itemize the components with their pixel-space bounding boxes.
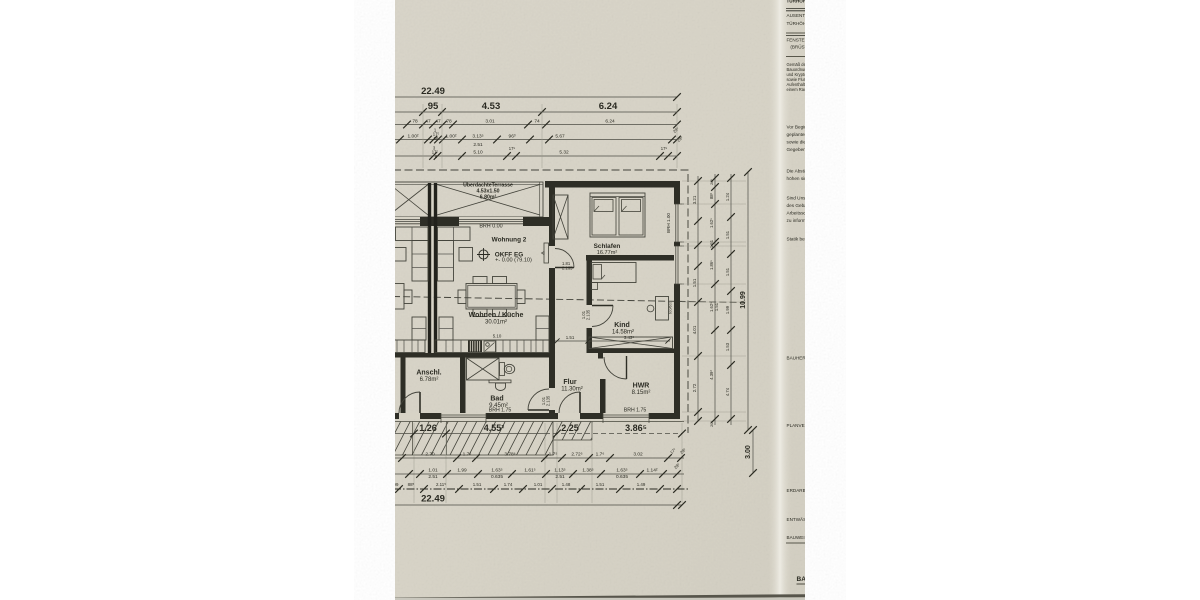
svg-text:4.74: 4.74 (725, 387, 730, 396)
svg-text:Wohnung 2: Wohnung 2 (492, 237, 527, 244)
svg-text:2.135: 2.135 (546, 395, 551, 406)
svg-text:PLANVERFASS: PLANVERFASS (787, 423, 820, 428)
svg-text:1.51: 1.51 (714, 302, 719, 311)
svg-text:16.77m²: 16.77m² (597, 250, 618, 256)
svg-text:Vor Beginn der Roh: Vor Beginn der Roh (787, 125, 828, 130)
svg-text:BRH 1.75: BRH 1.75 (489, 408, 512, 414)
svg-text:1.51: 1.51 (473, 482, 482, 487)
svg-text:1.63⁵: 1.63⁵ (491, 468, 502, 474)
svg-text:4.39³: 4.39³ (709, 370, 714, 380)
svg-text:1.01: 1.01 (534, 482, 543, 487)
svg-text:0.635: 0.635 (616, 474, 628, 480)
svg-text:96³: 96³ (509, 134, 516, 140)
svg-text:3.00: 3.00 (745, 445, 752, 459)
svg-text:Arbeitsschritte un: Arbeitsschritte un (787, 211, 824, 216)
svg-text:6.80m²: 6.80m² (480, 195, 497, 201)
svg-text:22.49: 22.49 (421, 494, 445, 505)
svg-text:1.7⁶: 1.7⁶ (463, 452, 472, 458)
svg-text:1.7⁶: 1.7⁶ (596, 452, 605, 458)
svg-text:(BRÜSTUNG: (BRÜSTUNG (787, 44, 819, 50)
svg-text:5.10: 5.10 (493, 334, 502, 339)
svg-text:1.48: 1.48 (562, 482, 571, 487)
svg-text:78: 78 (446, 119, 452, 125)
svg-text:geplanten Bauteile: geplanten Bauteile (787, 132, 826, 137)
svg-text:1.51: 1.51 (692, 278, 697, 287)
svg-text:BAUWEISE: BAUWEISE (787, 535, 811, 540)
svg-text:17⁵: 17⁵ (661, 146, 668, 151)
svg-text:1.99: 1.99 (457, 468, 467, 474)
svg-text:95: 95 (428, 101, 439, 112)
svg-text:ÜberdachteTerrasse: ÜberdachteTerrasse (463, 182, 513, 189)
svg-text:6.24: 6.24 (605, 119, 615, 125)
svg-text:Kind: Kind (614, 322, 630, 329)
svg-text:1.51: 1.51 (709, 239, 714, 248)
svg-text:+- 0.00 (79.10): +- 0.00 (79.10) (495, 258, 532, 264)
svg-text:2.135: 2.135 (562, 266, 573, 271)
svg-text:30.01m²: 30.01m² (485, 320, 507, 326)
svg-text:28⁵: 28⁵ (710, 179, 714, 185)
svg-text:1.63⁵: 1.63⁵ (616, 468, 627, 474)
svg-text:2.51: 2.51 (473, 142, 483, 148)
svg-text:74: 74 (534, 119, 540, 125)
svg-text:BRH 0.00: BRH 0.00 (479, 224, 502, 230)
svg-text:6.24: 6.24 (599, 101, 618, 112)
svg-text:47: 47 (425, 119, 431, 125)
svg-text:des Gebäudes ode: des Gebäudes ode (787, 203, 827, 208)
svg-text:1.51: 1.51 (596, 482, 605, 487)
svg-text:Sind Unstimmigke: Sind Unstimmigke (787, 196, 825, 201)
svg-text:BRH 1.00: BRH 1.00 (666, 213, 671, 233)
svg-text:2.51: 2.51 (555, 474, 565, 480)
svg-text:HWR: HWR (633, 383, 650, 390)
svg-text:3.43⁵: 3.43⁵ (624, 335, 635, 340)
svg-text:2.51: 2.51 (428, 474, 438, 480)
svg-text:0.635: 0.635 (491, 474, 503, 480)
svg-text:AUSENTÜREN: AUSENTÜREN (787, 12, 819, 18)
svg-text:1.49: 1.49 (637, 482, 646, 487)
svg-text:88⁵: 88⁵ (408, 482, 415, 487)
svg-text:1.74: 1.74 (504, 482, 513, 487)
svg-text:1.26: 1.26 (419, 423, 437, 433)
svg-text:Statik beachten!: Statik beachten! (787, 237, 821, 242)
svg-text:1.99: 1.99 (725, 305, 730, 314)
svg-text:1.53: 1.53 (725, 342, 730, 351)
svg-text:einem Rauchmelde: einem Rauchmelde (787, 87, 823, 92)
svg-text:36: 36 (434, 136, 439, 141)
svg-text:2.72⁵: 2.72⁵ (571, 452, 582, 458)
svg-text:11.30m²: 11.30m² (561, 387, 583, 393)
svg-text:3.86⁵: 3.86⁵ (625, 423, 647, 433)
svg-text:BAUVORH: BAUVORH (797, 576, 830, 583)
svg-text:Flur: Flur (563, 379, 576, 386)
svg-text:Bad: Bad (490, 396, 503, 403)
svg-text:Schlafen: Schlafen (594, 243, 621, 250)
svg-text:6.78m²: 6.78m² (420, 377, 439, 383)
svg-text:1.13⁵: 1.13⁵ (554, 468, 565, 474)
svg-text:1.38⁵: 1.38⁵ (582, 468, 593, 474)
svg-text:20⁵: 20⁵ (710, 421, 714, 427)
svg-text:22.49: 22.49 (421, 86, 445, 97)
svg-text:2.72: 2.72 (692, 383, 697, 392)
svg-text:TÜRHÖHEN LIC: TÜRHÖHEN LIC (787, 20, 822, 26)
svg-text:3.02: 3.02 (633, 452, 643, 458)
svg-text:5.32: 5.32 (559, 150, 569, 156)
svg-text:3.01: 3.01 (485, 119, 495, 125)
svg-text:3.78⁶: 3.78⁶ (504, 452, 515, 458)
svg-text:99: 99 (394, 482, 399, 487)
svg-text:1.86⁵: 1.86⁵ (709, 260, 714, 270)
svg-text:3.13⁵: 3.13⁵ (472, 134, 483, 140)
svg-text:Die Abstände der: Die Abstände der (787, 169, 823, 174)
svg-text:1.51: 1.51 (725, 230, 730, 239)
svg-text:3.21: 3.21 (692, 195, 697, 204)
svg-text:600/600: 600/600 (669, 302, 673, 314)
svg-text:8.15m²: 8.15m² (632, 390, 651, 396)
svg-text:1.00²: 1.00² (446, 134, 457, 140)
svg-text:sowie die vorhande: sowie die vorhande (787, 140, 828, 145)
svg-text:10.99: 10.99 (740, 291, 747, 309)
svg-text:14.58m²: 14.58m² (612, 330, 634, 336)
svg-text:1.62⁵: 1.62⁵ (709, 218, 714, 228)
svg-text:5.10: 5.10 (473, 150, 483, 156)
svg-text:88²: 88² (709, 192, 714, 199)
svg-text:BAUHERR:: BAUHERR: (787, 356, 811, 361)
svg-text:1.01: 1.01 (428, 468, 438, 474)
svg-text:höhen sind vor Or: höhen sind vor Or (787, 176, 825, 181)
svg-text:4.53: 4.53 (482, 101, 501, 112)
svg-text:ENTWÄSSERU: ENTWÄSSERU (787, 516, 819, 522)
svg-text:17⁵: 17⁵ (509, 146, 516, 151)
svg-text:2.11⁵: 2.11⁵ (436, 482, 446, 487)
svg-text:1.51: 1.51 (725, 267, 730, 276)
svg-text:4.01: 4.01 (692, 325, 697, 334)
svg-text:2.25: 2.25 (561, 423, 579, 433)
svg-text:Wohnen / Küche: Wohnen / Küche (469, 312, 524, 319)
svg-text:BRH 1.75: BRH 1.75 (624, 408, 647, 414)
svg-text:1.14²: 1.14² (647, 468, 658, 474)
svg-text:2.135: 2.135 (586, 309, 591, 320)
svg-text:47: 47 (435, 119, 441, 125)
svg-text:2.70: 2.70 (425, 452, 435, 458)
svg-text:ERDARBEITEN: ERDARBEITEN (787, 488, 820, 493)
svg-text:TÜRHÖHEN ROH: TÜRHÖHEN ROH (787, 0, 825, 4)
svg-text:5.67: 5.67 (555, 134, 565, 140)
svg-text:78: 78 (412, 119, 418, 125)
svg-text:FENSTERHÖHE: FENSTERHÖHE (787, 37, 822, 43)
svg-text:zu informieren.: zu informieren. (787, 218, 818, 223)
svg-text:Gegebenheiten un: Gegebenheiten un (787, 147, 826, 152)
svg-text:1.00²: 1.00² (408, 134, 419, 140)
svg-text:4.55²: 4.55² (484, 423, 505, 433)
svg-text:1.7⁵: 1.7⁵ (549, 452, 558, 458)
svg-text:1.24: 1.24 (725, 192, 730, 201)
svg-text:Anschl.: Anschl. (416, 370, 441, 377)
svg-text:1.51: 1.51 (566, 335, 575, 340)
svg-text:1.61⁵: 1.61⁵ (524, 468, 535, 474)
